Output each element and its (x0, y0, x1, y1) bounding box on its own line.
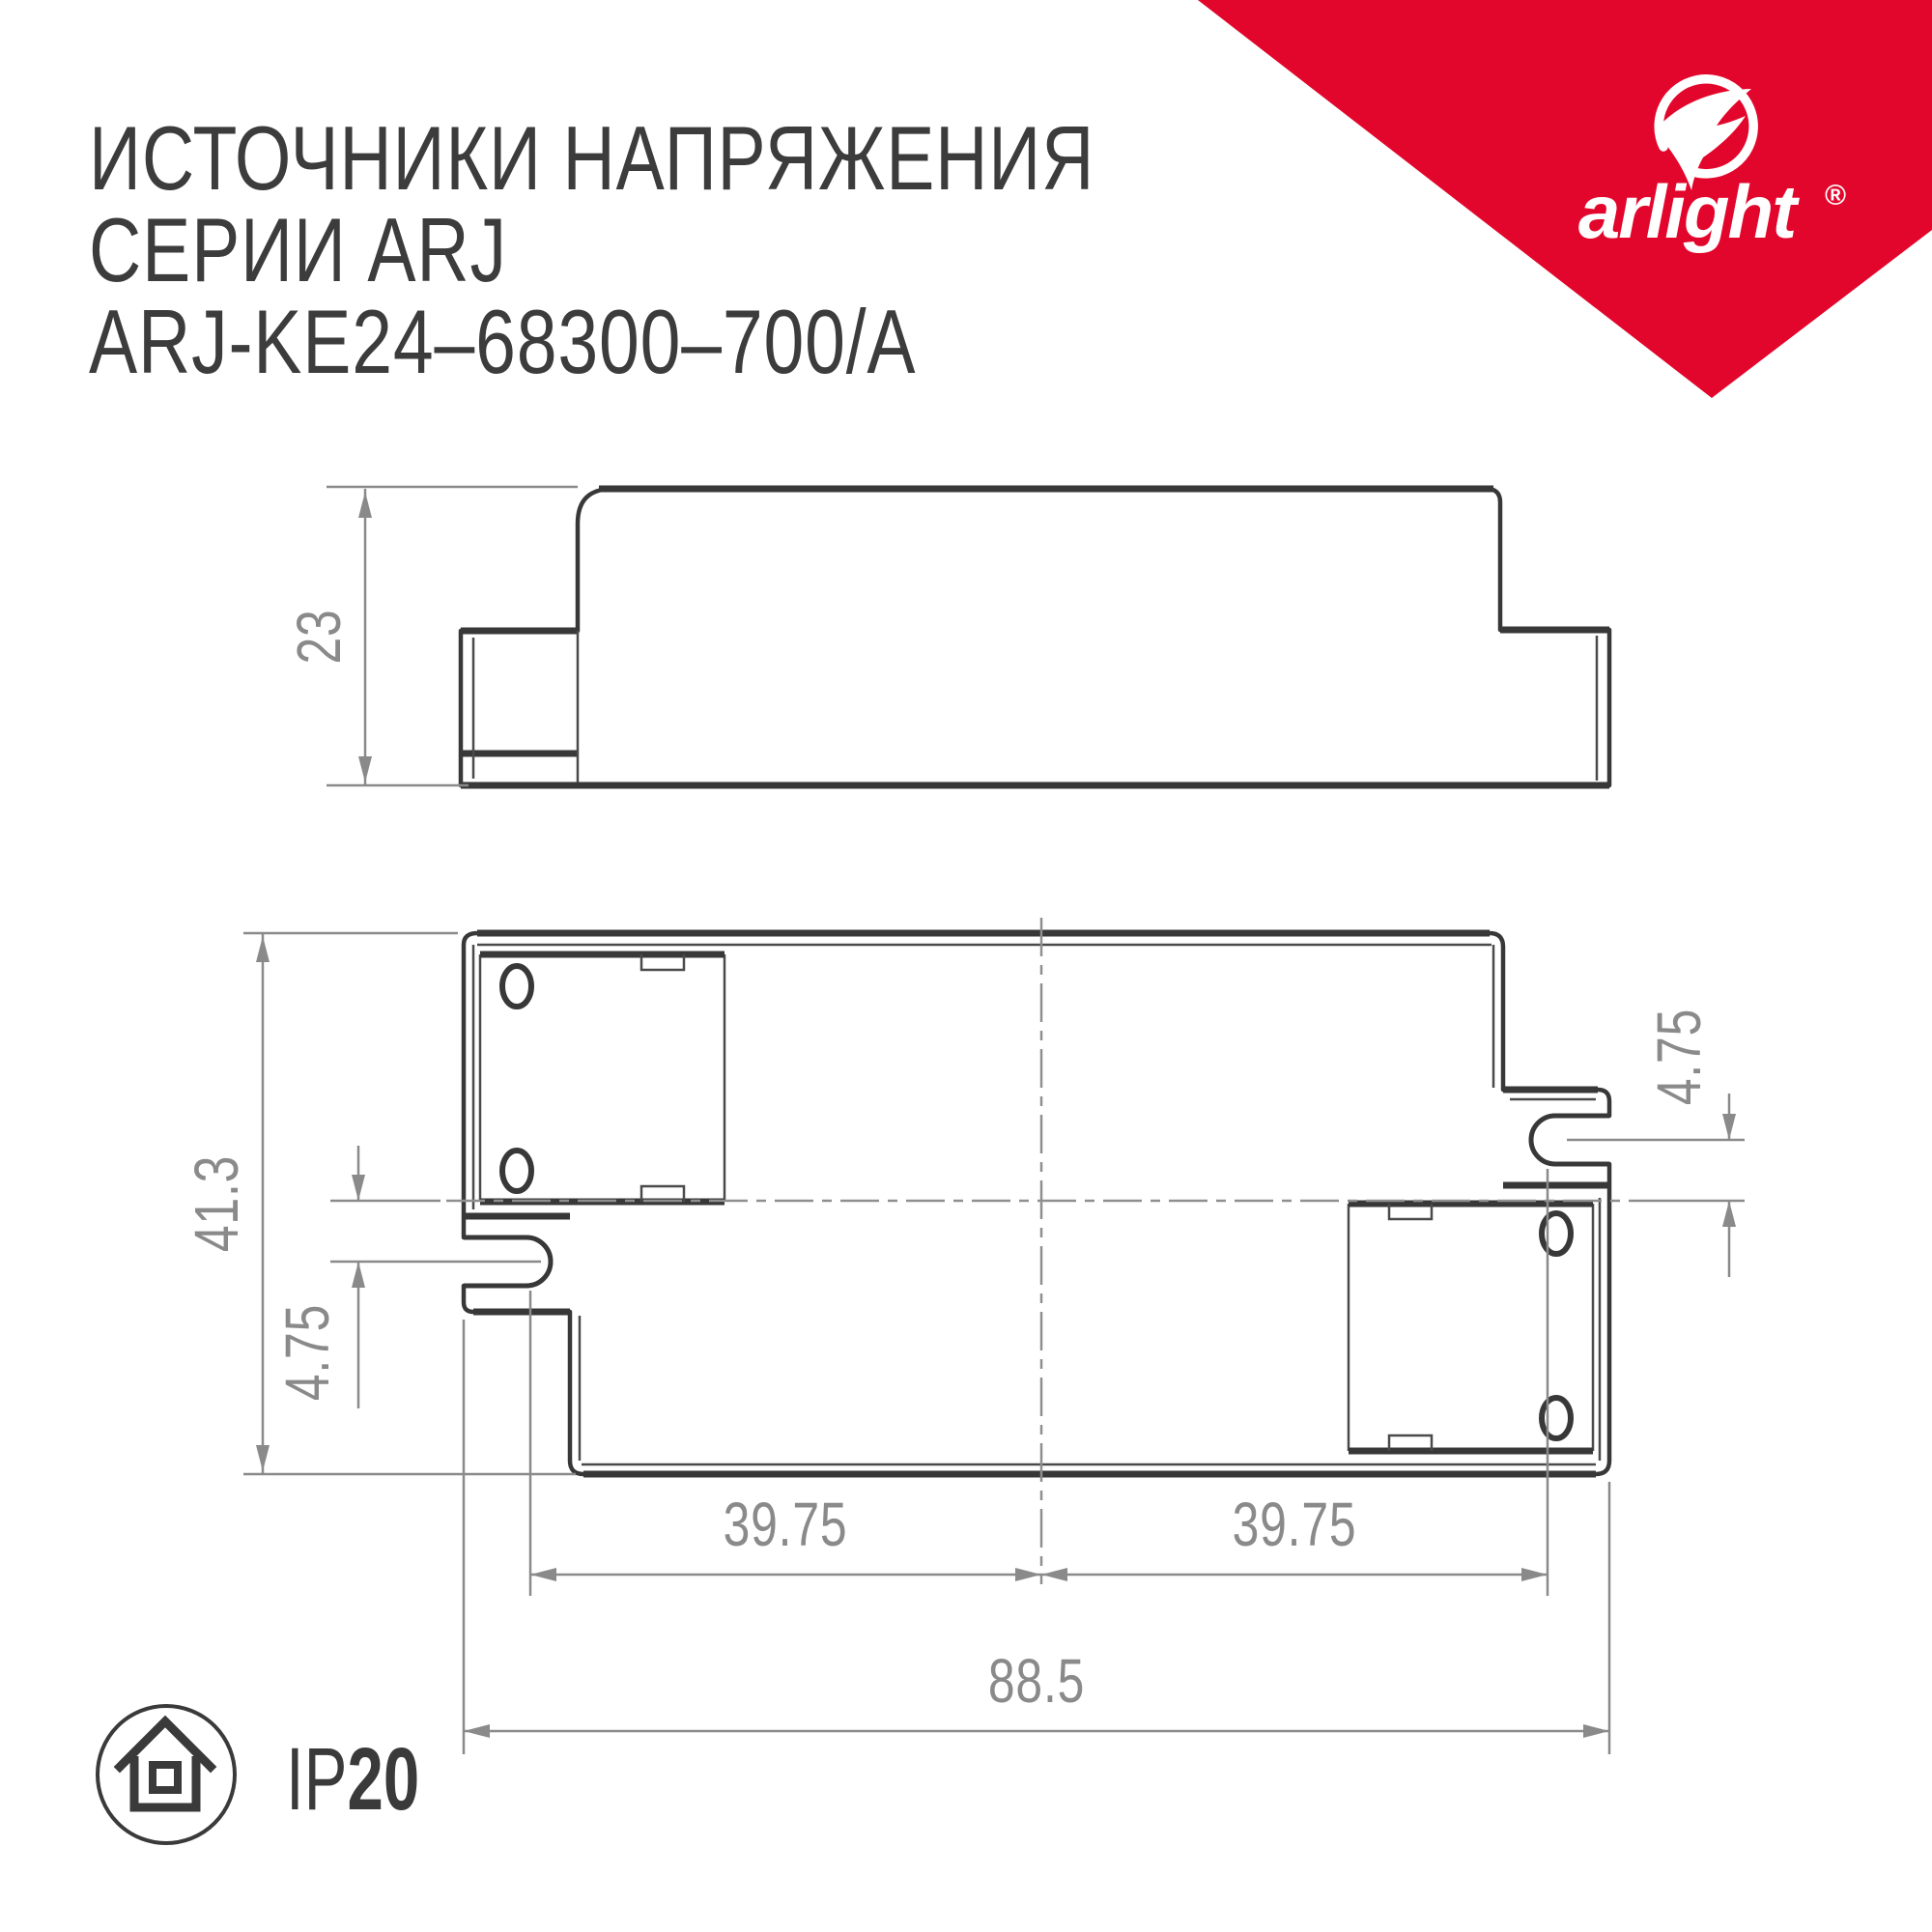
dimension-slot-offset-left: 4.75 (273, 1146, 541, 1408)
dim-value-41-3: 41.3 (183, 1155, 251, 1252)
mount-hole (502, 966, 531, 1007)
arrow-up-icon (358, 492, 372, 518)
arrow-up-icon (256, 936, 270, 962)
ip-rating: IP20 (286, 1735, 419, 1824)
dimension-side-height: 23 (285, 487, 578, 785)
dim-value-23: 23 (285, 609, 354, 664)
datasheet-page: ИСТОЧНИКИ НАПРЯЖЕНИЯ СЕРИИ ARJ ARJ-KE24–… (0, 0, 1932, 1932)
dimension-overall-length: 88.5 (464, 1320, 1609, 1754)
ip-prefix: IP (286, 1730, 347, 1829)
arrow-down-icon (1722, 1114, 1736, 1140)
bracket-bottom-right (1349, 1204, 1593, 1451)
arrow-left-icon (464, 1724, 490, 1738)
ip-value: 20 (347, 1730, 419, 1829)
top-view (446, 918, 1633, 1584)
house-icon (120, 1721, 211, 1807)
arrow-right-icon (1583, 1724, 1609, 1738)
dim-value-39-75-right: 39.75 (1233, 1491, 1357, 1559)
arrow-up-icon (352, 1262, 365, 1288)
arrow-left-icon (1041, 1568, 1067, 1581)
mount-hole (1542, 1213, 1571, 1254)
ip-badge (91, 1699, 241, 1850)
dim-value-88-5: 88.5 (988, 1647, 1085, 1716)
arrow-down-icon (358, 756, 372, 782)
technical-drawing: 23 (0, 0, 1932, 1932)
dim-value-4-75-left: 4.75 (273, 1304, 342, 1401)
bracket-top-left (480, 954, 724, 1202)
arrow-up-icon (1722, 1201, 1736, 1227)
side-view (461, 489, 1609, 785)
dim-value-39-75-left: 39.75 (724, 1491, 848, 1559)
arrow-down-icon (256, 1445, 270, 1471)
side-view-outline (461, 489, 1609, 785)
mount-hole (502, 1151, 531, 1191)
arrow-down-icon (352, 1175, 365, 1201)
arrow-right-icon (1521, 1568, 1548, 1581)
arrow-right-icon (1015, 1568, 1041, 1581)
dim-value-4-75-right: 4.75 (1645, 1009, 1714, 1105)
mount-hole (1542, 1398, 1571, 1438)
dimension-hole-pitch: 39.75 39.75 (530, 1169, 1548, 1596)
arrow-left-icon (530, 1568, 556, 1581)
